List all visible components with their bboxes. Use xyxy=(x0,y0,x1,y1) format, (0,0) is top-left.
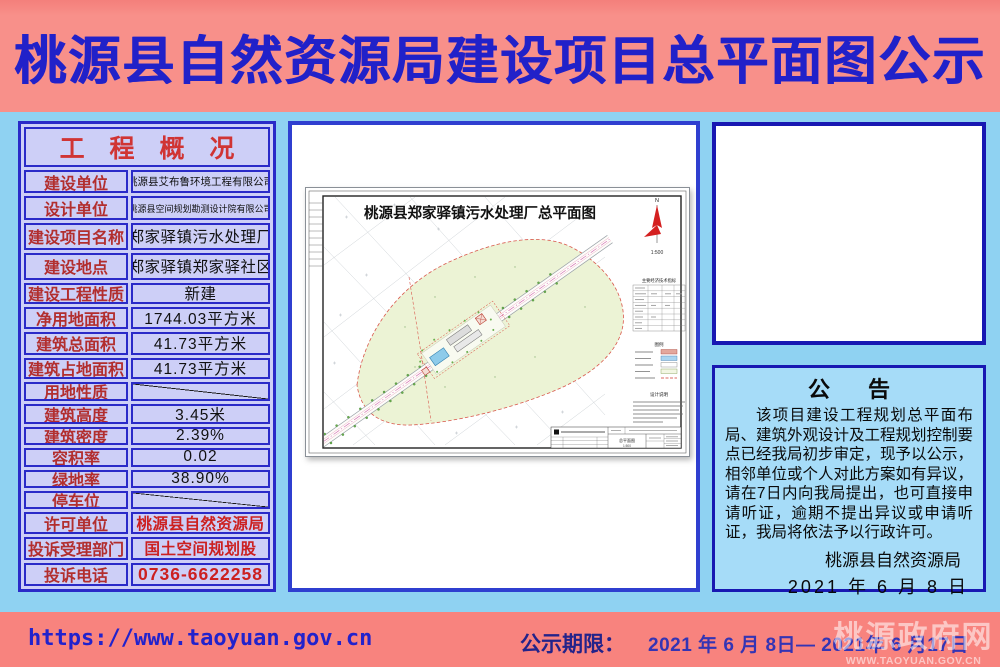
row-label: 建筑总面积 xyxy=(24,332,128,354)
row-value: 桃源县艾布鲁环境工程有限公司 xyxy=(131,170,270,193)
row-value: 1744.03平方米 xyxy=(131,307,270,329)
row-value: 3.45米 xyxy=(131,404,270,424)
table-row: 建设工程性质 新建 xyxy=(24,283,270,304)
table-row: 绿地率 38.90% xyxy=(24,470,270,488)
table-row: 建设单位 桃源县艾布鲁环境工程有限公司 xyxy=(24,170,270,193)
table-row: 设计单位 桃源县空间规划勘测设计院有限公司 xyxy=(24,196,270,219)
row-label: 绿地率 xyxy=(24,470,128,488)
row-value: 2.39% xyxy=(131,427,270,445)
row-value: 41.73平方米 xyxy=(131,332,270,354)
row-label: 投诉电话 xyxy=(24,563,128,586)
site-plan-panel: 桃源县郑家驿镇污水处理厂总平面图 N 1:500 主要经济技术指标 xyxy=(288,121,700,592)
row-label: 设计单位 xyxy=(24,196,128,219)
table-row: 建设地点 郑家驿镇郑家驿社区 xyxy=(24,253,270,280)
notice-signature: 桃源县自然资源局 xyxy=(725,546,973,571)
north-label: N xyxy=(655,198,659,204)
legend-title: 图例 xyxy=(655,341,664,348)
page-title: 桃源县自然资源局建设项目总平面图公示 xyxy=(14,19,986,94)
row-label: 投诉受理部门 xyxy=(24,537,128,559)
row-label: 建设单位 xyxy=(24,170,128,193)
row-label: 建设项目名称 xyxy=(24,223,128,250)
row-label: 许可单位 xyxy=(24,512,128,534)
row-value: 41.73平方米 xyxy=(131,358,270,379)
row-label: 建筑密度 xyxy=(24,427,128,445)
row-value: 桃源县自然资源局 xyxy=(131,512,270,534)
website-link[interactable]: https://www.taoyuan.gov.cn xyxy=(28,626,372,651)
table-row: 净用地面积 1744.03平方米 xyxy=(24,307,270,329)
drawing-title: 桃源县郑家驿镇污水处理厂总平面图 xyxy=(364,204,596,222)
row-label: 建设地点 xyxy=(24,253,128,280)
table-row: 建筑总面积 41.73平方米 xyxy=(24,332,270,354)
notice-date: 2021 年 6 月 8 日 xyxy=(725,573,973,599)
table-row: 停车位 xyxy=(24,491,270,509)
photo-placeholder-box xyxy=(712,122,986,345)
row-label: 净用地面积 xyxy=(24,307,128,329)
row-label: 容积率 xyxy=(24,448,128,467)
row-label: 建筑占地面积 xyxy=(24,358,128,379)
footer-bar: https://www.taoyuan.gov.cn 公示期限： 2021 年 … xyxy=(0,612,1000,667)
public-notice-board: 桃源县自然资源局建设项目总平面图公示 工 程 概 况 建设单位 桃源县艾布鲁环境… xyxy=(0,0,1000,667)
row-value: 郑家驿镇污水处理厂 xyxy=(131,223,270,250)
row-value-empty xyxy=(131,491,270,509)
table-row: 投诉受理部门 国土空间规划股 xyxy=(24,537,270,559)
row-value: 新建 xyxy=(131,283,270,304)
design-institute-logo xyxy=(554,430,559,435)
table-row: 用地性质 xyxy=(24,382,270,401)
row-value: 桃源县空间规划勘测设计院有限公司 xyxy=(131,196,270,219)
publicity-period-label: 公示期限： xyxy=(520,628,625,658)
row-value: 国土空间规划股 xyxy=(131,537,270,559)
row-label: 建筑高度 xyxy=(24,404,128,424)
table-row: 建筑高度 3.45米 xyxy=(24,404,270,424)
table-header: 工 程 概 况 xyxy=(24,127,270,167)
watermark: 桃源政府网 WWW.TAOYUAN.GOV.CN xyxy=(831,623,996,667)
scale-label: 1:500 xyxy=(651,250,664,256)
indicators-title: 主要经济技术指标 xyxy=(642,277,677,284)
row-label: 用地性质 xyxy=(24,382,128,401)
row-value: 郑家驿镇郑家驿社区 xyxy=(131,253,270,280)
table-row: 建筑密度 2.39% xyxy=(24,427,270,445)
row-value: 0.02 xyxy=(131,448,270,467)
table-row: 容积率 0.02 xyxy=(24,448,270,467)
table-row: 投诉电话 0736-6622258 xyxy=(24,563,270,586)
titleblock-name: 总平面图 xyxy=(619,437,635,443)
row-value: 0736-6622258 xyxy=(131,563,270,586)
notice-body: 该项目建设工程规划总平面布局、建筑外观设计及工程规划控制要点已经我局初步审定，现… xyxy=(725,406,973,543)
notice-title: 公 告 xyxy=(725,372,973,404)
site-plan-drawing: 桃源县郑家驿镇污水处理厂总平面图 N 1:500 主要经济技术指标 xyxy=(305,187,690,457)
table-row: 建筑占地面积 41.73平方米 xyxy=(24,358,270,379)
titleblock-scale: 1:500 xyxy=(623,444,631,448)
title-block: 总平面图 1:500 xyxy=(551,427,681,448)
row-label: 停车位 xyxy=(24,491,128,509)
notice-box: 公 告 该项目建设工程规划总平面布局、建筑外观设计及工程规划控制要点已经我局初步… xyxy=(712,365,986,592)
row-value-empty xyxy=(131,382,270,401)
row-value: 38.90% xyxy=(131,470,270,488)
banner: 桃源县自然资源局建设项目总平面图公示 xyxy=(0,0,1000,112)
notes-title: 设计说明 xyxy=(650,391,668,398)
table-row: 建设项目名称 郑家驿镇污水处理厂 xyxy=(24,223,270,250)
watermark-site-url: WWW.TAOYUAN.GOV.CN xyxy=(831,656,996,667)
table-row: 许可单位 桃源县自然资源局 xyxy=(24,512,270,534)
watermark-site-name: 桃源政府网 xyxy=(831,623,996,653)
row-label: 建设工程性质 xyxy=(24,283,128,304)
project-overview-table: 工 程 概 况 建设单位 桃源县艾布鲁环境工程有限公司 设计单位 桃源县空间规划… xyxy=(18,121,276,592)
